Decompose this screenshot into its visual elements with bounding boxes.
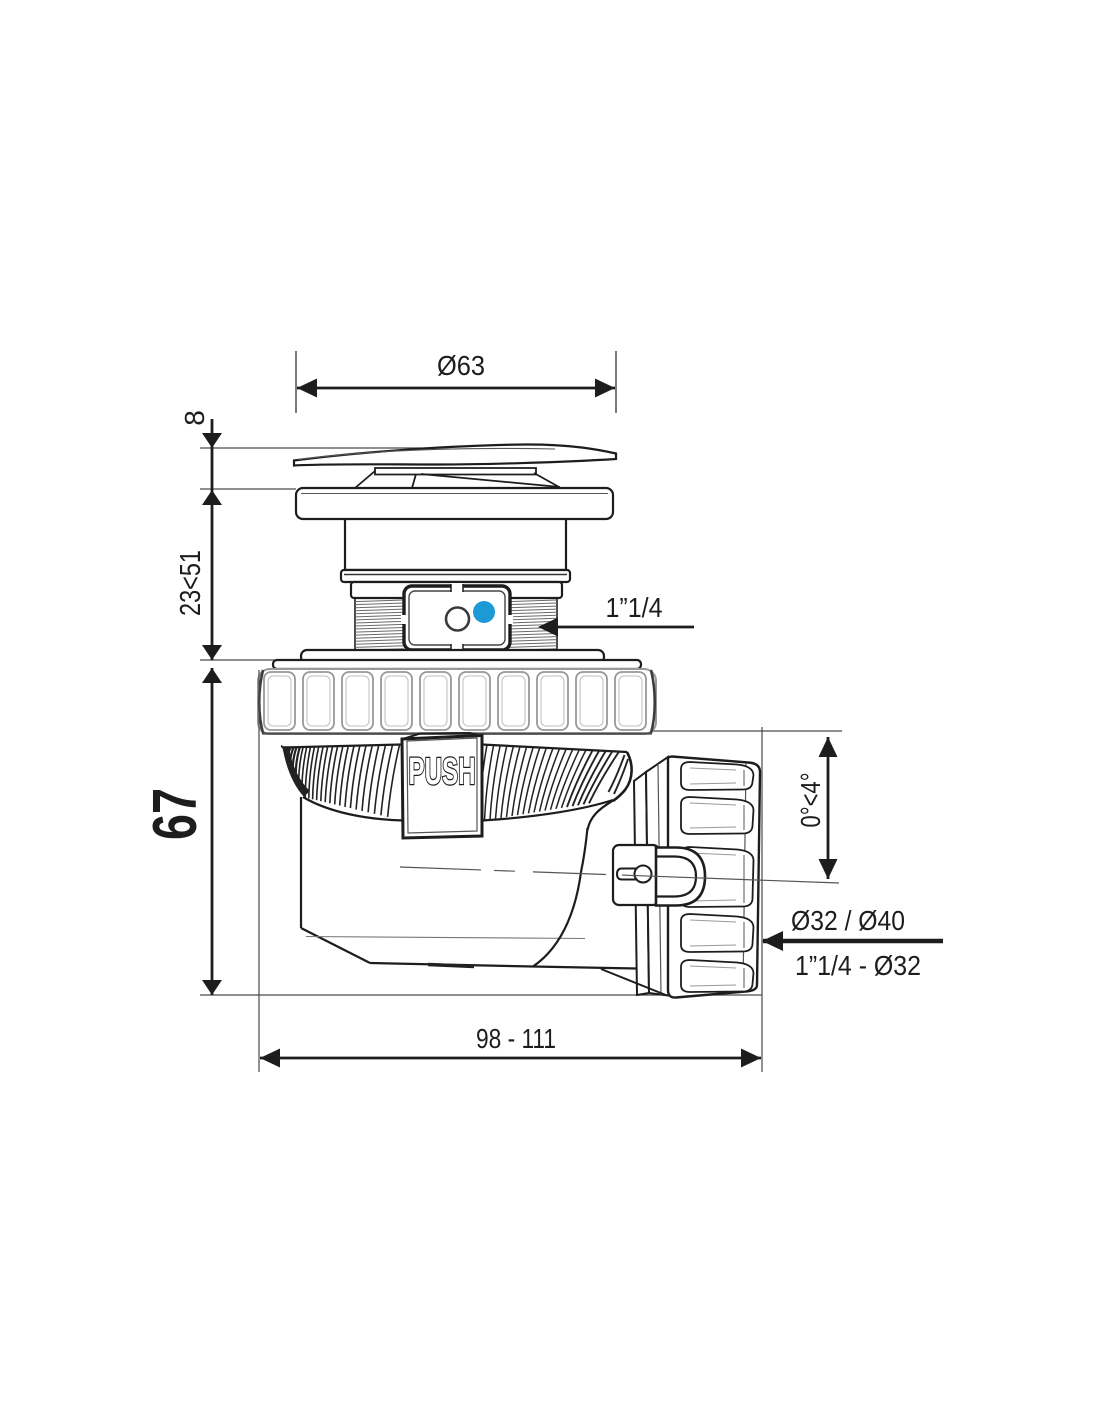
svg-text:23<51: 23<51: [175, 550, 207, 616]
svg-text:1”1/4: 1”1/4: [606, 592, 663, 623]
svg-text:98 - 111: 98 - 111: [476, 1023, 556, 1054]
svg-text:Ø32 / Ø40: Ø32 / Ø40: [791, 905, 905, 936]
svg-text:67: 67: [141, 788, 210, 840]
svg-text:PUSH: PUSH: [409, 751, 476, 793]
svg-text:Ø63: Ø63: [437, 350, 485, 381]
svg-text:8: 8: [179, 410, 210, 426]
svg-text:0°<4°: 0°<4°: [795, 773, 826, 828]
svg-text:1”1/4 - Ø32: 1”1/4 - Ø32: [795, 950, 921, 981]
